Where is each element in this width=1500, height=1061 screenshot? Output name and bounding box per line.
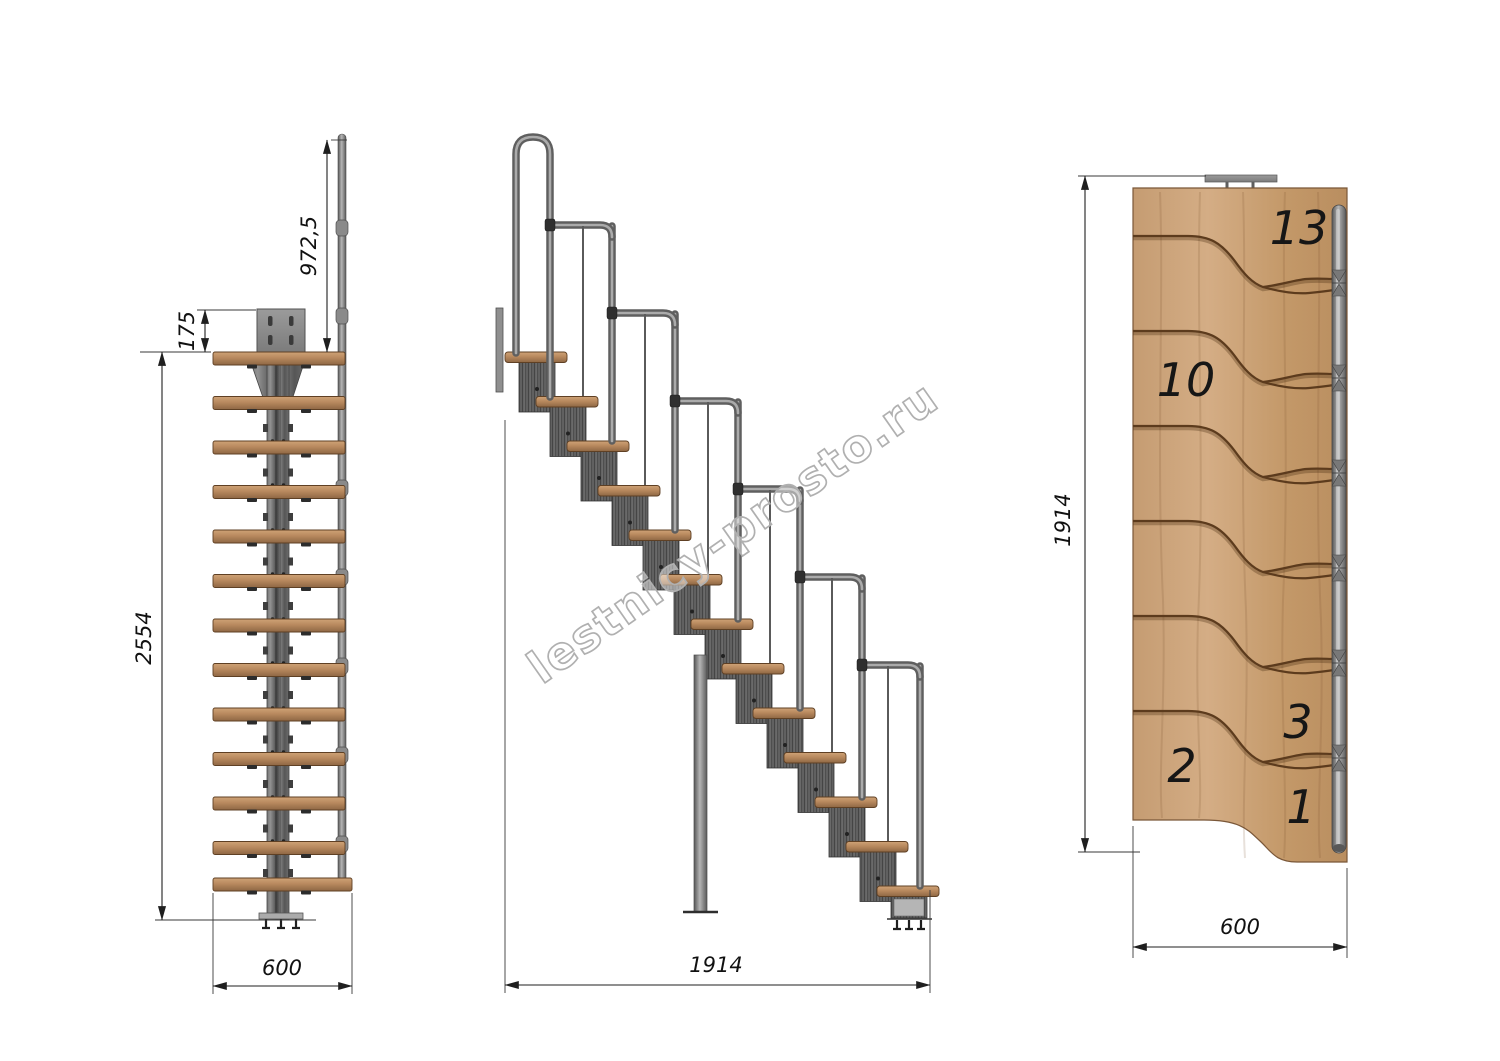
plate-slot xyxy=(289,316,294,326)
step-module-base xyxy=(887,896,932,929)
dim-label-plan-width: 600 xyxy=(1220,915,1260,939)
rail-connector xyxy=(1332,650,1346,676)
plate-slot xyxy=(268,335,273,345)
tread xyxy=(598,486,660,497)
dim-label-total-run: 1914 xyxy=(689,953,742,977)
front-elevation-view: 972,5 175 2554 600 xyxy=(132,134,352,994)
tread-number-3: 3 xyxy=(1283,695,1312,749)
dim-label-handrail-height: 972,5 xyxy=(297,216,321,276)
wall-mounting-plate xyxy=(257,309,305,352)
rail-connector xyxy=(1332,555,1346,581)
dim-label-front-width: 600 xyxy=(262,956,302,980)
wall-plate xyxy=(496,308,503,392)
support-leg xyxy=(683,655,718,912)
rail-connector xyxy=(1332,745,1346,771)
tread-number-1: 1 xyxy=(1286,780,1315,834)
rail-connector xyxy=(1332,365,1346,391)
plan-handrail xyxy=(1332,205,1346,853)
plate-slot xyxy=(268,316,273,326)
dim-label-plate-offset: 175 xyxy=(175,311,199,351)
handrail-post xyxy=(338,134,346,890)
clamp xyxy=(670,395,680,407)
rail-segment xyxy=(862,665,920,677)
clamp xyxy=(607,307,617,319)
post-sleeve xyxy=(336,308,348,324)
dim-total-run: 1914 xyxy=(505,420,930,993)
clamp xyxy=(795,571,805,583)
tread xyxy=(567,441,629,452)
post-sleeve xyxy=(336,220,348,236)
tread-number-13: 13 xyxy=(1270,201,1329,255)
rail-connector xyxy=(1332,460,1346,486)
tread xyxy=(753,708,815,719)
rail-connector xyxy=(1332,270,1346,296)
column-base xyxy=(259,913,303,928)
tread xyxy=(846,842,908,853)
base-flange xyxy=(259,913,303,919)
drawing-canvas: 972,5 175 2554 600 xyxy=(0,0,1500,1061)
clamp xyxy=(857,659,867,671)
tread xyxy=(784,753,846,764)
tread-number-10: 10 xyxy=(1157,353,1216,407)
tread xyxy=(691,619,753,630)
dim-plate-offset: 175 xyxy=(140,310,256,352)
rail-segment xyxy=(675,401,738,413)
dim-label-plan-length: 1914 xyxy=(1051,493,1075,546)
rail-segment xyxy=(612,313,675,325)
tread xyxy=(536,397,598,408)
tread-number-2: 2 xyxy=(1167,739,1196,793)
dim-label-total-height: 2554 xyxy=(132,611,156,664)
rail-end-cap xyxy=(1333,844,1345,852)
tread xyxy=(815,797,877,808)
staircase-technical-drawing: 972,5 175 2554 600 xyxy=(0,0,1500,1061)
clamp xyxy=(545,219,555,231)
tread xyxy=(722,664,784,675)
plate-slot xyxy=(289,335,294,345)
rail-segment xyxy=(550,225,612,237)
plan-view: 13 10 3 2 1 1914 600 xyxy=(1051,175,1347,958)
